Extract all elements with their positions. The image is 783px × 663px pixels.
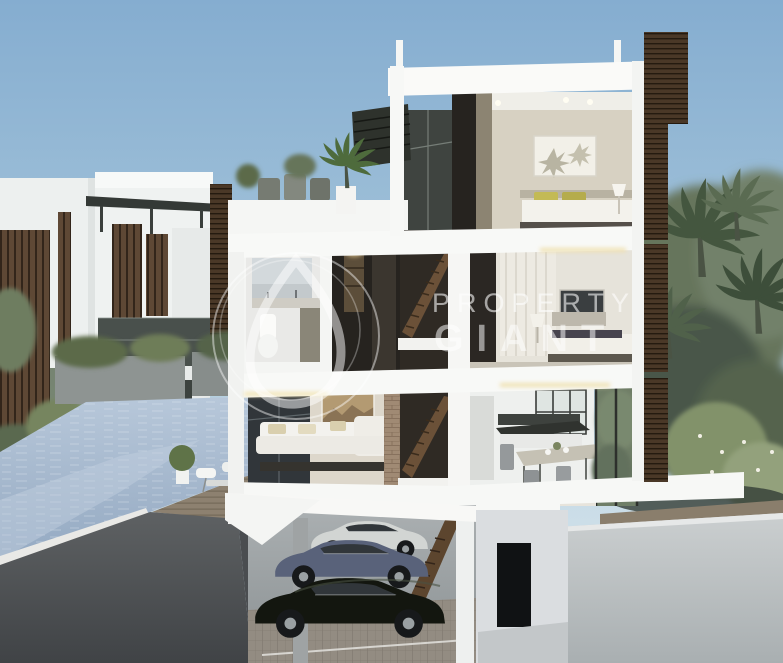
leaf-artwork <box>534 136 596 178</box>
master-bedroom <box>404 92 640 234</box>
basement-corridor <box>476 510 568 663</box>
watermark-text-top: PROPERTY <box>432 288 636 318</box>
render-canvas: PROPERTY GIANT <box>0 0 783 663</box>
boundary-wall <box>556 513 783 663</box>
architectural-render: PROPERTY GIANT <box>0 0 783 663</box>
basement-garage <box>225 493 478 663</box>
corridor-doorway <box>497 543 531 627</box>
kitchen-island <box>496 414 590 448</box>
master-bed <box>520 190 640 231</box>
media-console <box>260 462 388 471</box>
watermark-text-bottom: GIANT <box>434 318 617 360</box>
sectional-sofa <box>256 416 398 456</box>
